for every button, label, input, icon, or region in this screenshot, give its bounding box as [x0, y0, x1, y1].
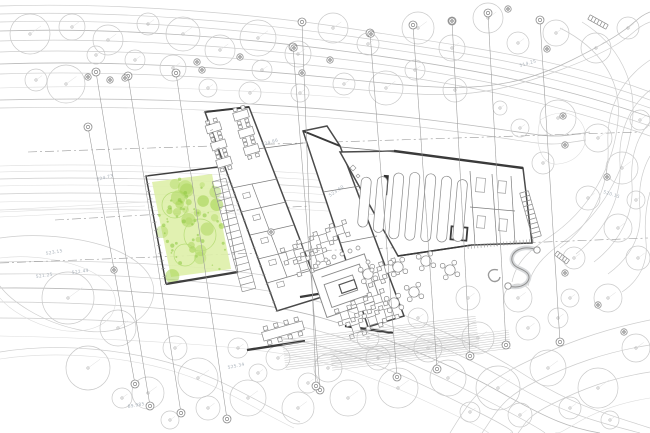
- planting-dot: [175, 256, 177, 258]
- grid-bubble: [409, 21, 417, 29]
- round-table-set: [404, 282, 424, 302]
- chair: [379, 288, 384, 293]
- chair: [238, 125, 242, 129]
- chair: [293, 259, 298, 264]
- marker-outer: [237, 54, 243, 60]
- tree-canopy: [581, 33, 611, 63]
- stair-tread: [230, 243, 244, 247]
- planting-dot: [212, 264, 213, 265]
- chair: [309, 236, 314, 241]
- tree-canopy: [456, 286, 480, 310]
- wall-tick: [153, 222, 157, 223]
- site-plan-drawing: 524.73523.15521.25522.49525.3489.985524.…: [0, 0, 650, 433]
- tree-branch-tick: [66, 76, 76, 84]
- planting-dot: [216, 220, 219, 223]
- tree-canopy: [93, 25, 123, 55]
- stair-tread: [567, 260, 570, 264]
- tree-branch-tick: [468, 293, 475, 298]
- chair: [247, 155, 251, 159]
- chair: [431, 263, 436, 268]
- tree-canopy: [205, 35, 235, 65]
- tree-branch-tick: [548, 361, 558, 368]
- tree-tag-marker: [237, 54, 243, 60]
- tree-canopy: [617, 17, 639, 39]
- tree-tag-marker: [449, 18, 455, 24]
- stair-tread: [564, 258, 567, 262]
- tree-canopy: [163, 336, 187, 360]
- contour-line: [622, 192, 650, 292]
- marker-outer: [621, 329, 627, 335]
- stair-tread: [594, 18, 596, 22]
- tree-branch-tick: [448, 371, 458, 378]
- grid-line: [540, 20, 560, 342]
- chair: [333, 236, 338, 241]
- marker-outer: [505, 6, 511, 12]
- stair-tread: [212, 178, 226, 182]
- tree-branch-tick: [638, 253, 645, 258]
- planting-dot: [191, 223, 193, 225]
- stool: [324, 258, 328, 262]
- stair-tread: [597, 20, 599, 24]
- tree-canopy: [161, 411, 179, 429]
- planting-dot: [171, 249, 174, 252]
- chair: [367, 292, 372, 297]
- wall-tick: [147, 191, 151, 192]
- chair: [298, 331, 303, 336]
- chair: [399, 305, 404, 310]
- chair: [452, 260, 457, 265]
- chair: [325, 228, 330, 233]
- chair: [358, 267, 363, 272]
- chair: [377, 266, 382, 271]
- elevation-label: 524.73: [96, 173, 114, 183]
- chair: [407, 297, 412, 302]
- tree-canopy: [576, 186, 600, 210]
- tree-tag-marker: [85, 74, 91, 80]
- grid-bubble: [536, 16, 544, 24]
- tree-canopy: [405, 60, 425, 80]
- tree-tag-marker: [560, 113, 566, 119]
- chair: [384, 296, 389, 301]
- tree-tag-marker: [544, 46, 550, 52]
- contour-line: [0, 206, 146, 217]
- chair: [309, 251, 314, 256]
- wall-tick: [157, 245, 161, 246]
- tree-branch-tick: [518, 292, 526, 298]
- tree-branch-tick: [636, 196, 641, 200]
- chair: [362, 314, 367, 319]
- chair: [209, 133, 213, 137]
- tree-canopy: [196, 396, 220, 420]
- green-courtyard: [152, 174, 231, 283]
- tree-branch-tick: [248, 391, 258, 398]
- chair: [367, 309, 372, 314]
- elevation-label-layer: 524.73523.15521.25522.49525.3489.985524.…: [35, 58, 620, 410]
- tree-branch-tick: [122, 394, 128, 398]
- chair: [233, 108, 237, 112]
- grid-line-group: [92, 68, 154, 410]
- planting-dot: [183, 191, 187, 195]
- tree-branch-tick: [262, 66, 268, 70]
- chair: [284, 260, 289, 265]
- stair-tread: [559, 255, 562, 259]
- tree-canopy: [100, 310, 136, 346]
- chair: [220, 168, 224, 172]
- tree-canopy: [561, 289, 579, 307]
- stool: [332, 255, 336, 259]
- planting-dot: [183, 208, 185, 210]
- marker-outer: [291, 45, 297, 51]
- chair: [455, 272, 460, 277]
- chair: [277, 337, 282, 342]
- chair: [273, 323, 278, 328]
- tree-branch-tick: [608, 292, 616, 298]
- tree-canopy: [230, 380, 266, 416]
- marker-outer: [199, 67, 205, 73]
- chair: [351, 300, 356, 305]
- planting-dot: [224, 249, 226, 251]
- chair: [243, 142, 247, 146]
- contour-line: [608, 156, 650, 274]
- stair-tread: [588, 15, 590, 19]
- tree-canopy: [508, 403, 532, 427]
- chair: [293, 244, 298, 249]
- stair-tread: [235, 262, 249, 266]
- wall-tick: [148, 199, 152, 200]
- tree-tag-marker: [194, 59, 200, 65]
- tree-canopy: [627, 191, 645, 209]
- wall-tick: [145, 183, 149, 184]
- planting-dot: [197, 234, 199, 236]
- marker-outer: [449, 18, 455, 24]
- planting-dot: [175, 242, 178, 245]
- tree-canopy: [285, 41, 311, 67]
- chair: [382, 274, 387, 279]
- contour-line: [560, 60, 650, 248]
- grid-bubble: [298, 18, 306, 26]
- chair: [218, 135, 222, 139]
- stair-tread: [237, 269, 251, 273]
- grid-bubble: [92, 68, 100, 76]
- tree-canopy: [25, 69, 47, 91]
- planting-dot: [178, 178, 181, 181]
- tree-branch-tick: [398, 380, 409, 388]
- chair: [346, 322, 351, 327]
- tree-canopy: [252, 60, 272, 80]
- chair: [378, 322, 383, 327]
- tree-tag-marker: [604, 174, 610, 180]
- marker-outer: [562, 142, 568, 148]
- contour-line: [0, 21, 650, 108]
- round-table-set: [440, 260, 460, 280]
- hatch-line: [285, 337, 479, 361]
- chair: [322, 248, 327, 253]
- chair: [213, 118, 217, 122]
- grid-bubble: [502, 341, 510, 349]
- tree-branch-tick: [528, 323, 535, 328]
- planting-dot: [167, 221, 169, 223]
- tree-canopy: [543, 20, 569, 46]
- tree-tag-marker: [505, 6, 511, 12]
- table: [318, 233, 328, 243]
- chair: [374, 310, 379, 315]
- planting-dot: [218, 268, 220, 270]
- chair: [288, 334, 293, 339]
- hatch-line: [285, 341, 479, 365]
- chair: [383, 301, 388, 306]
- tree-branch-tick: [298, 49, 305, 54]
- marker-outer: [604, 174, 610, 180]
- grid-bubble: [556, 338, 564, 346]
- tree-branch-tick: [610, 416, 615, 420]
- stair-tread: [239, 275, 253, 279]
- marker-outer: [107, 77, 113, 83]
- square-table-set: [313, 228, 334, 249]
- chair: [373, 276, 378, 281]
- tree-tag-marker: [291, 45, 297, 51]
- tree-tag-marker: [107, 77, 113, 83]
- stair-tread: [600, 21, 602, 25]
- tree-branch-tick: [622, 162, 631, 168]
- marker-outer: [327, 57, 333, 63]
- elevation-label: 525.34: [227, 362, 245, 371]
- table: [393, 262, 403, 272]
- stair-tread: [242, 288, 256, 292]
- s-sculpture-end: [505, 283, 511, 289]
- tree-branch-tick: [520, 410, 527, 415]
- tree-branch-tick: [478, 332, 487, 338]
- tree-canopy: [601, 411, 619, 429]
- chair: [222, 148, 226, 152]
- contour-line: [0, 40, 650, 126]
- tree-branch-tick: [170, 416, 175, 420]
- planting-dot: [170, 199, 172, 201]
- wall-tick: [160, 260, 164, 261]
- stair-tread: [530, 227, 539, 229]
- chair: [251, 140, 255, 144]
- chair: [215, 151, 219, 155]
- marker-outer: [560, 113, 566, 119]
- grid-bubble: [484, 9, 492, 17]
- table: [445, 265, 455, 275]
- grid-line-group: [84, 123, 139, 388]
- tree-branch-tick: [344, 80, 350, 84]
- chair: [246, 122, 250, 126]
- tree-branch-tick: [556, 28, 563, 33]
- wall-tick: [155, 237, 159, 238]
- tree-canopy: [240, 20, 276, 56]
- contour-line: [450, 320, 650, 433]
- chair: [358, 318, 363, 323]
- tree-branch-tick: [348, 391, 358, 398]
- tree-branch-tick: [628, 24, 634, 28]
- tree-branch-tick: [520, 124, 525, 128]
- tree-branch-tick: [183, 27, 192, 34]
- tree-canopy: [578, 368, 618, 408]
- tree-tag-marker: [299, 70, 305, 76]
- planting-dot: [162, 224, 165, 227]
- planting-dot: [171, 252, 173, 254]
- tree-canopy: [291, 84, 309, 102]
- tree-branch-tick: [418, 22, 427, 28]
- planting-dot: [192, 238, 195, 241]
- planting-dot: [207, 212, 209, 214]
- stool: [356, 246, 360, 250]
- stair-tread: [226, 230, 240, 234]
- stool: [370, 268, 374, 272]
- tree-branch-tick: [148, 387, 157, 393]
- tree-canopy: [160, 55, 186, 81]
- tree-canopy: [493, 101, 507, 115]
- tree-tag-marker: [268, 229, 274, 235]
- chair: [329, 240, 334, 245]
- table: [351, 324, 361, 334]
- chair: [317, 244, 322, 249]
- chair: [217, 131, 221, 135]
- tree-branch-tick: [36, 76, 42, 80]
- grid-bubble: [433, 365, 441, 373]
- stair-tread: [240, 282, 254, 286]
- tree-tag-marker: [327, 57, 333, 63]
- tree-canopy: [516, 316, 540, 340]
- chair: [391, 272, 396, 277]
- planting-blob: [186, 199, 192, 205]
- stair-tread: [603, 23, 605, 27]
- tree-branch-tick: [175, 343, 182, 348]
- chair: [237, 121, 241, 125]
- planting-dot: [166, 218, 168, 220]
- chair: [361, 279, 366, 284]
- planting-blob: [197, 195, 209, 207]
- tree-branch-tick: [258, 31, 268, 38]
- chair: [280, 248, 285, 253]
- contour-line: [0, 87, 350, 98]
- planting-dot: [200, 187, 202, 189]
- tree-branch-tick: [558, 314, 564, 318]
- stool: [340, 252, 344, 256]
- chair: [334, 309, 339, 314]
- tree-branch-tick: [108, 34, 116, 40]
- tree-canopy: [239, 82, 261, 104]
- chair: [419, 266, 424, 271]
- tree-branch-tick: [300, 89, 305, 93]
- tree-canopy: [59, 14, 85, 40]
- tree-canopy: [606, 152, 638, 184]
- chair: [404, 285, 409, 290]
- round-table-set: [416, 251, 436, 271]
- tree-canopy: [199, 79, 217, 97]
- chair: [403, 269, 408, 274]
- chair: [350, 317, 355, 322]
- grid-bubble: [172, 69, 180, 77]
- tree-canopy: [42, 272, 94, 324]
- tree-branch-tick: [570, 294, 575, 298]
- stair-tread: [555, 251, 558, 255]
- tree-canopy: [47, 65, 85, 103]
- marker-outer: [194, 59, 200, 65]
- tree-tag-marker: [621, 329, 627, 335]
- chair: [241, 105, 245, 109]
- stair-tread: [533, 236, 542, 238]
- chair: [378, 306, 383, 311]
- elevation-label: 523.15: [45, 248, 63, 257]
- contour-line: [0, 355, 294, 428]
- wall-tick: [151, 214, 155, 215]
- marker-outer: [299, 70, 305, 76]
- chair: [255, 153, 259, 157]
- tree-canopy: [125, 50, 145, 70]
- chair: [378, 262, 383, 267]
- tree-tag-marker: [562, 270, 568, 276]
- marker-outer: [268, 229, 274, 235]
- stool: [366, 260, 370, 264]
- tree-tag-marker: [562, 142, 568, 148]
- chair: [366, 326, 371, 331]
- chair: [294, 317, 299, 322]
- s-sculpture-hook: [488, 270, 500, 282]
- tree-tag-marker: [199, 67, 205, 73]
- tree-branch-tick: [148, 20, 154, 24]
- chair: [245, 118, 249, 122]
- tree-branch-tick: [518, 39, 524, 43]
- chair: [416, 254, 421, 259]
- chair: [419, 294, 424, 299]
- chair: [300, 252, 305, 257]
- grid-bubble: [146, 402, 154, 410]
- s-sculpture: [488, 247, 540, 289]
- chair: [396, 293, 401, 298]
- chair: [363, 297, 368, 302]
- chair: [443, 275, 448, 280]
- tree-canopy: [476, 366, 520, 410]
- stair-tread: [531, 231, 540, 233]
- chair: [267, 340, 272, 345]
- tree-tag-marker: [122, 75, 128, 81]
- tree-branch-tick: [238, 344, 244, 348]
- tree-tag-marker: [595, 302, 601, 308]
- chair: [329, 223, 334, 228]
- contour-line: [0, 12, 650, 87]
- tree-canopy: [249, 364, 267, 382]
- chair: [242, 138, 246, 142]
- planting-dot: [182, 219, 186, 223]
- tree-branch-tick: [418, 314, 424, 318]
- chair: [296, 240, 301, 245]
- table: [389, 298, 399, 308]
- tree-branch-tick: [574, 254, 580, 258]
- planting-blob: [200, 182, 205, 187]
- chair: [395, 314, 400, 319]
- tree-branch-tick: [198, 370, 209, 378]
- wall-tick: [150, 206, 154, 207]
- chair: [338, 321, 343, 326]
- chair: [263, 326, 268, 331]
- tree-branch-tick: [258, 369, 263, 373]
- stool: [316, 261, 320, 265]
- wall-tick: [158, 253, 162, 254]
- grid-bubble: [393, 373, 401, 381]
- tree-canopy: [507, 32, 529, 54]
- chair: [284, 320, 289, 325]
- tree-canopy: [333, 73, 355, 95]
- stair-tread: [557, 253, 560, 257]
- planting-dot: [193, 208, 195, 210]
- tree-canopy: [460, 402, 480, 422]
- marker-outer: [595, 302, 601, 308]
- planting-dot: [178, 198, 182, 202]
- chair: [354, 313, 359, 318]
- tree-branch-tick: [588, 193, 595, 198]
